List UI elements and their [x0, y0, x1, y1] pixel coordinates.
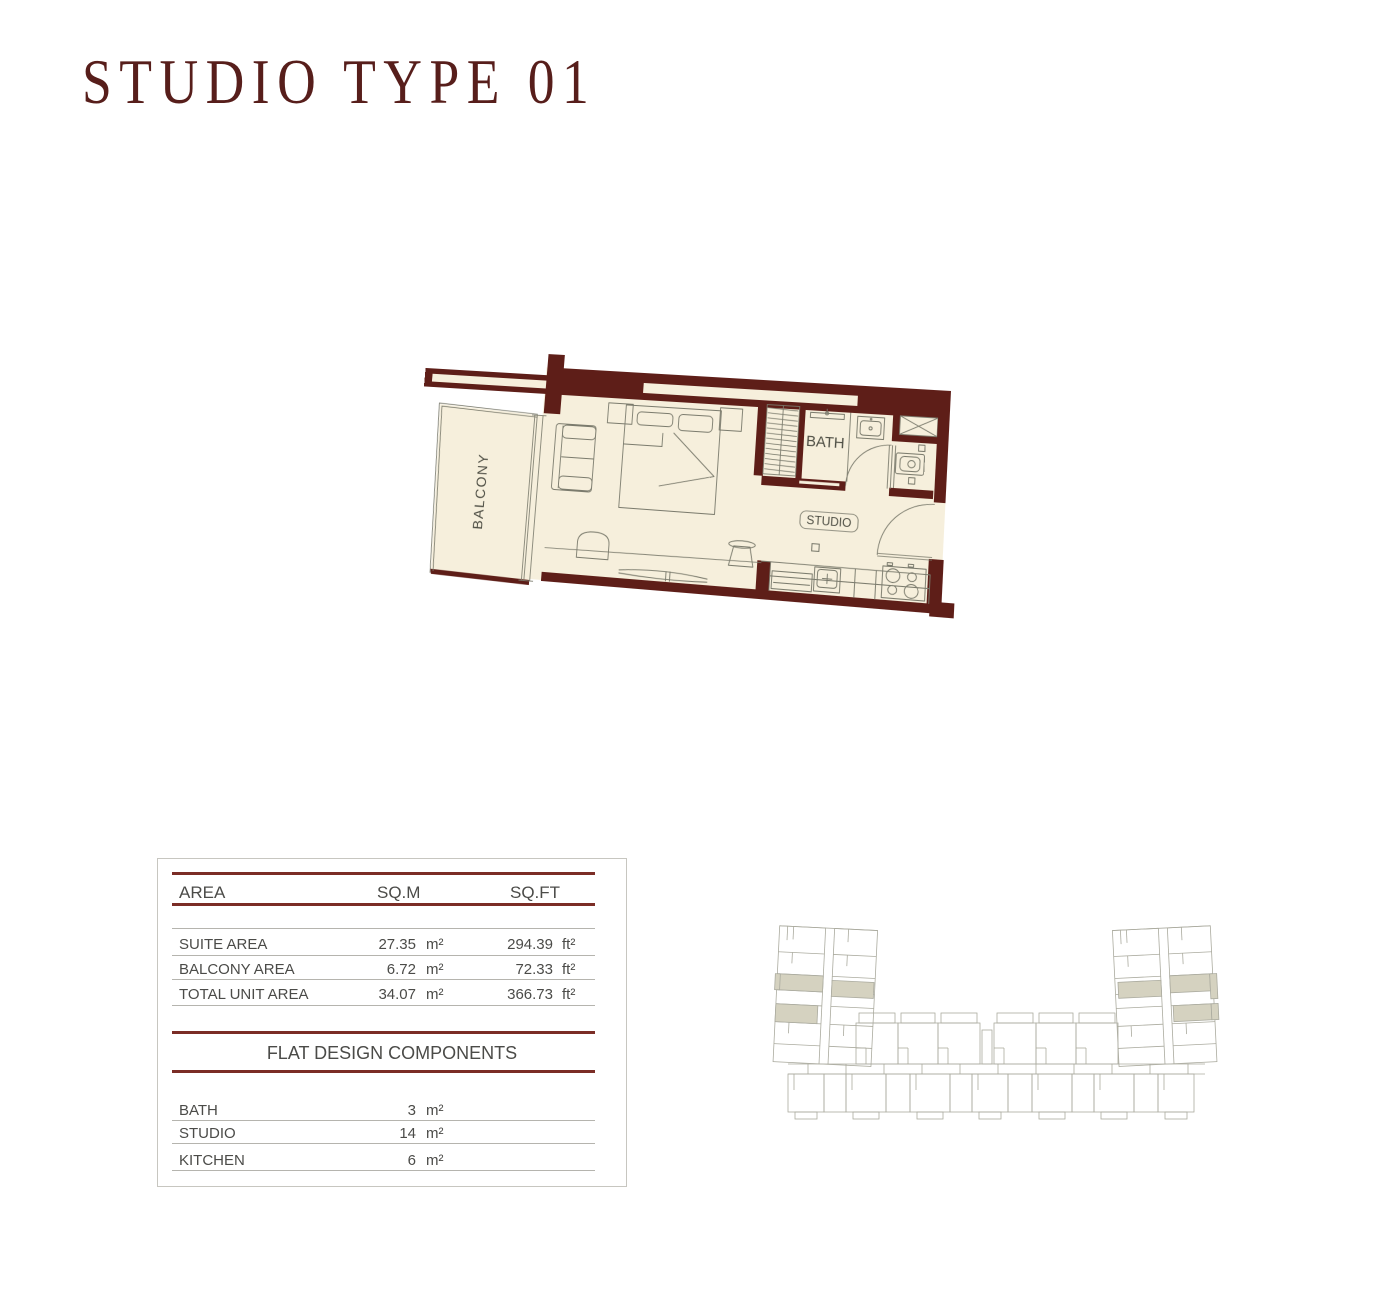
svg-text:BATH: BATH [806, 432, 846, 451]
